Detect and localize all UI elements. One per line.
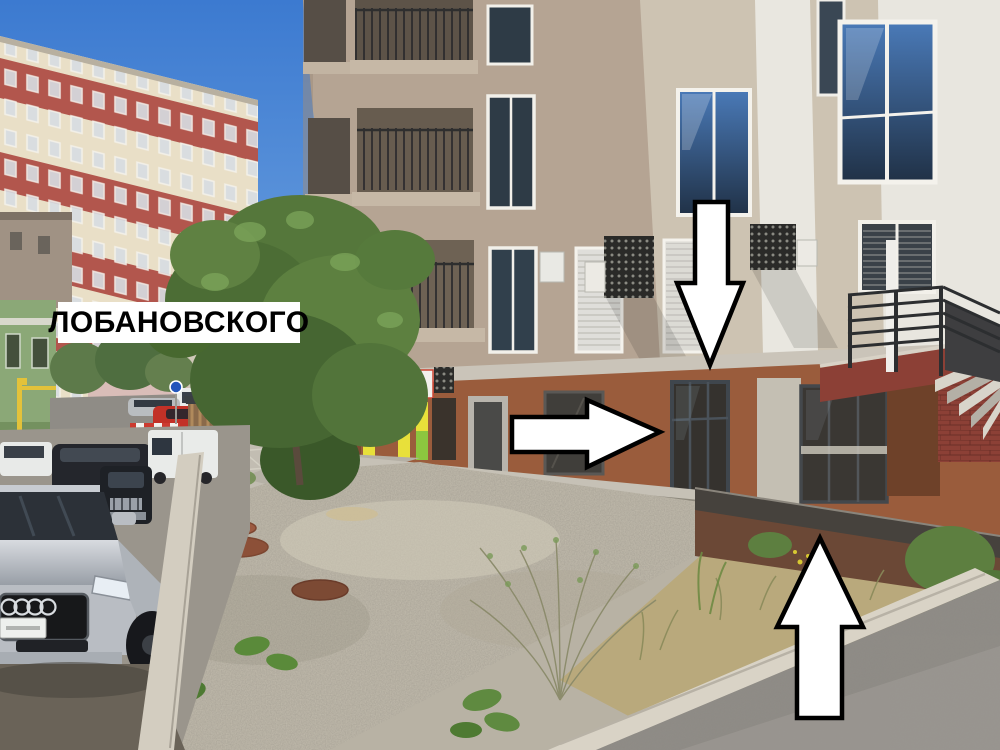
blinds-window	[860, 222, 934, 292]
old-brown-house	[0, 212, 72, 308]
ac-unit-small	[540, 252, 564, 282]
license-plate	[0, 618, 46, 638]
street-name-label: ЛОБАНОВСКОГО	[58, 302, 300, 343]
big-storefront-window	[801, 386, 887, 502]
light-pier	[757, 378, 801, 508]
street-name-text: ЛОБАНОВСКОГО	[48, 308, 309, 338]
photo-scene	[0, 0, 1000, 750]
dark-plank	[432, 398, 456, 460]
blue-window-right	[840, 22, 935, 182]
blue-window-mid	[678, 90, 750, 215]
annotated-street-photo: ЛОБАНОВСКОГО	[0, 0, 1000, 750]
